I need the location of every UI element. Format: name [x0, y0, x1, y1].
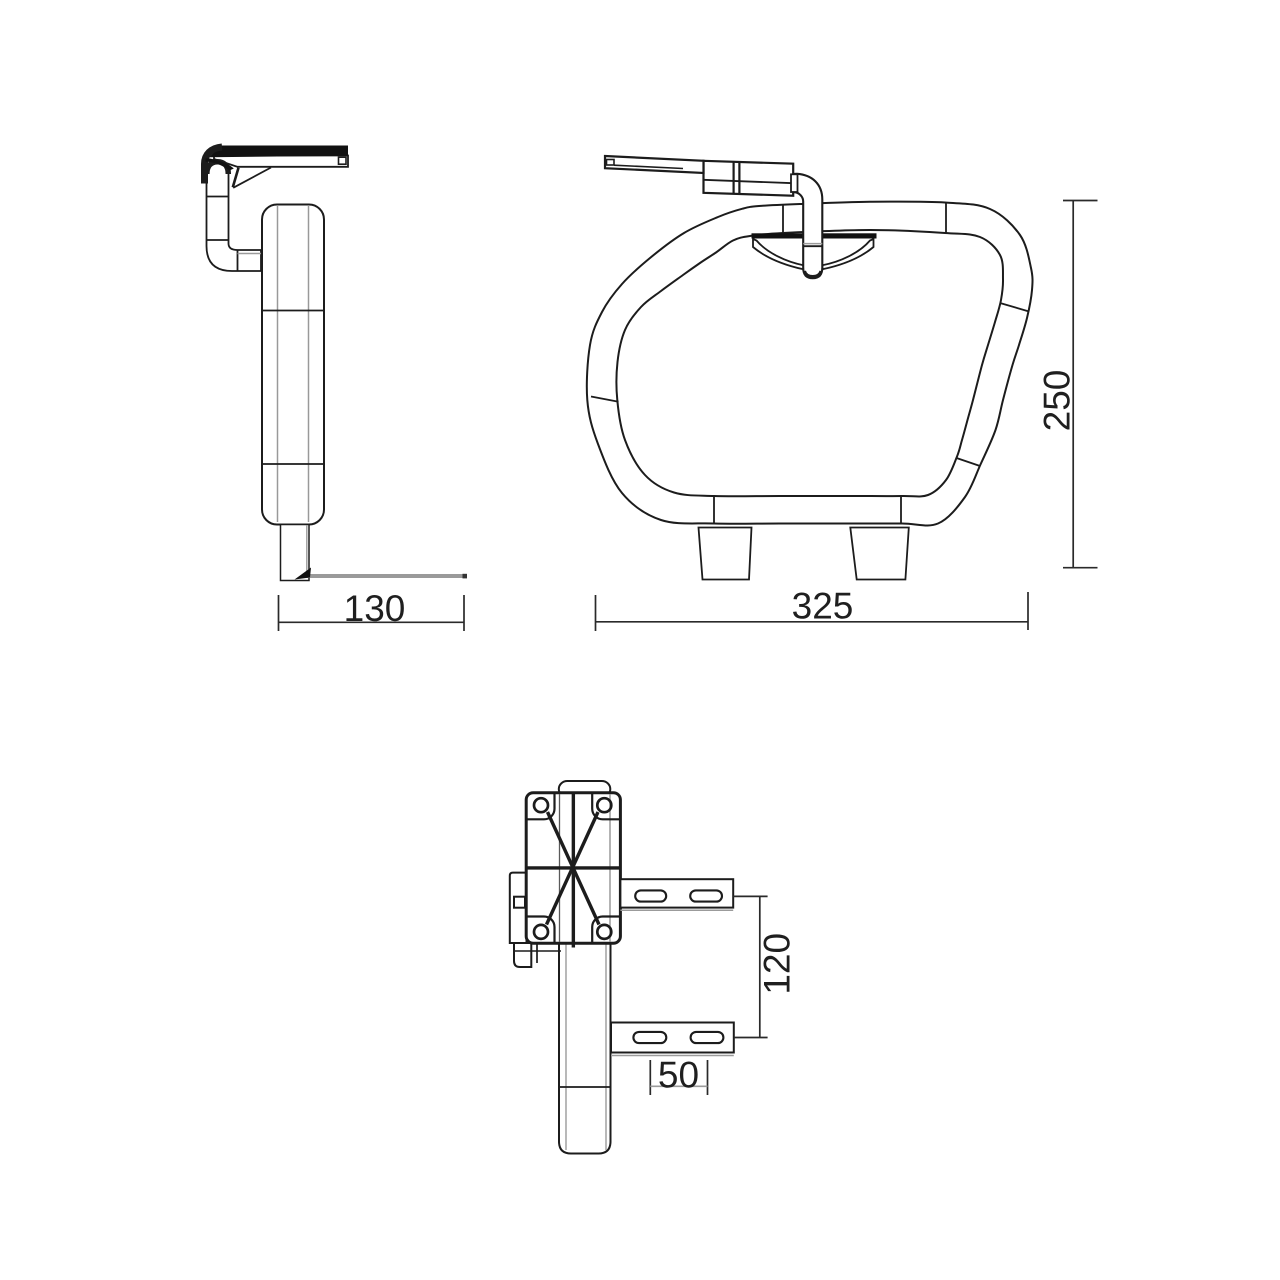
svg-text:50: 50: [658, 1055, 699, 1096]
svg-text:130: 130: [344, 588, 406, 629]
svg-text:120: 120: [757, 933, 798, 995]
svg-text:250: 250: [1037, 370, 1078, 432]
svg-text:325: 325: [792, 586, 854, 627]
